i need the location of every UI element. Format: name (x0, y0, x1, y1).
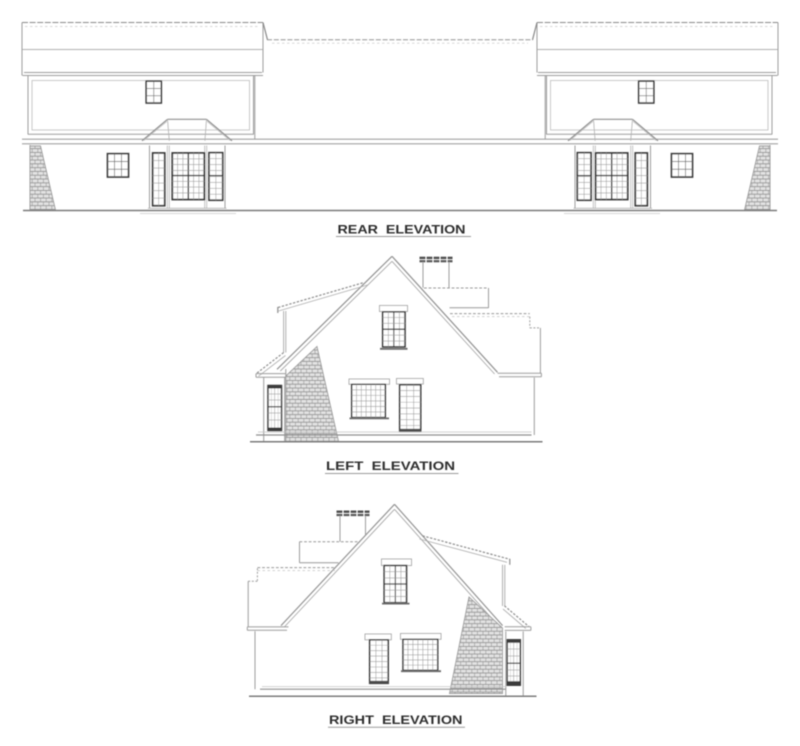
svg-text:REAR ELEVATION: REAR ELEVATION (338, 225, 466, 237)
svg-text:RIGHT ELEVATION: RIGHT ELEVATION (329, 715, 463, 727)
svg-text:LEFT ELEVATION: LEFT ELEVATION (326, 461, 455, 473)
